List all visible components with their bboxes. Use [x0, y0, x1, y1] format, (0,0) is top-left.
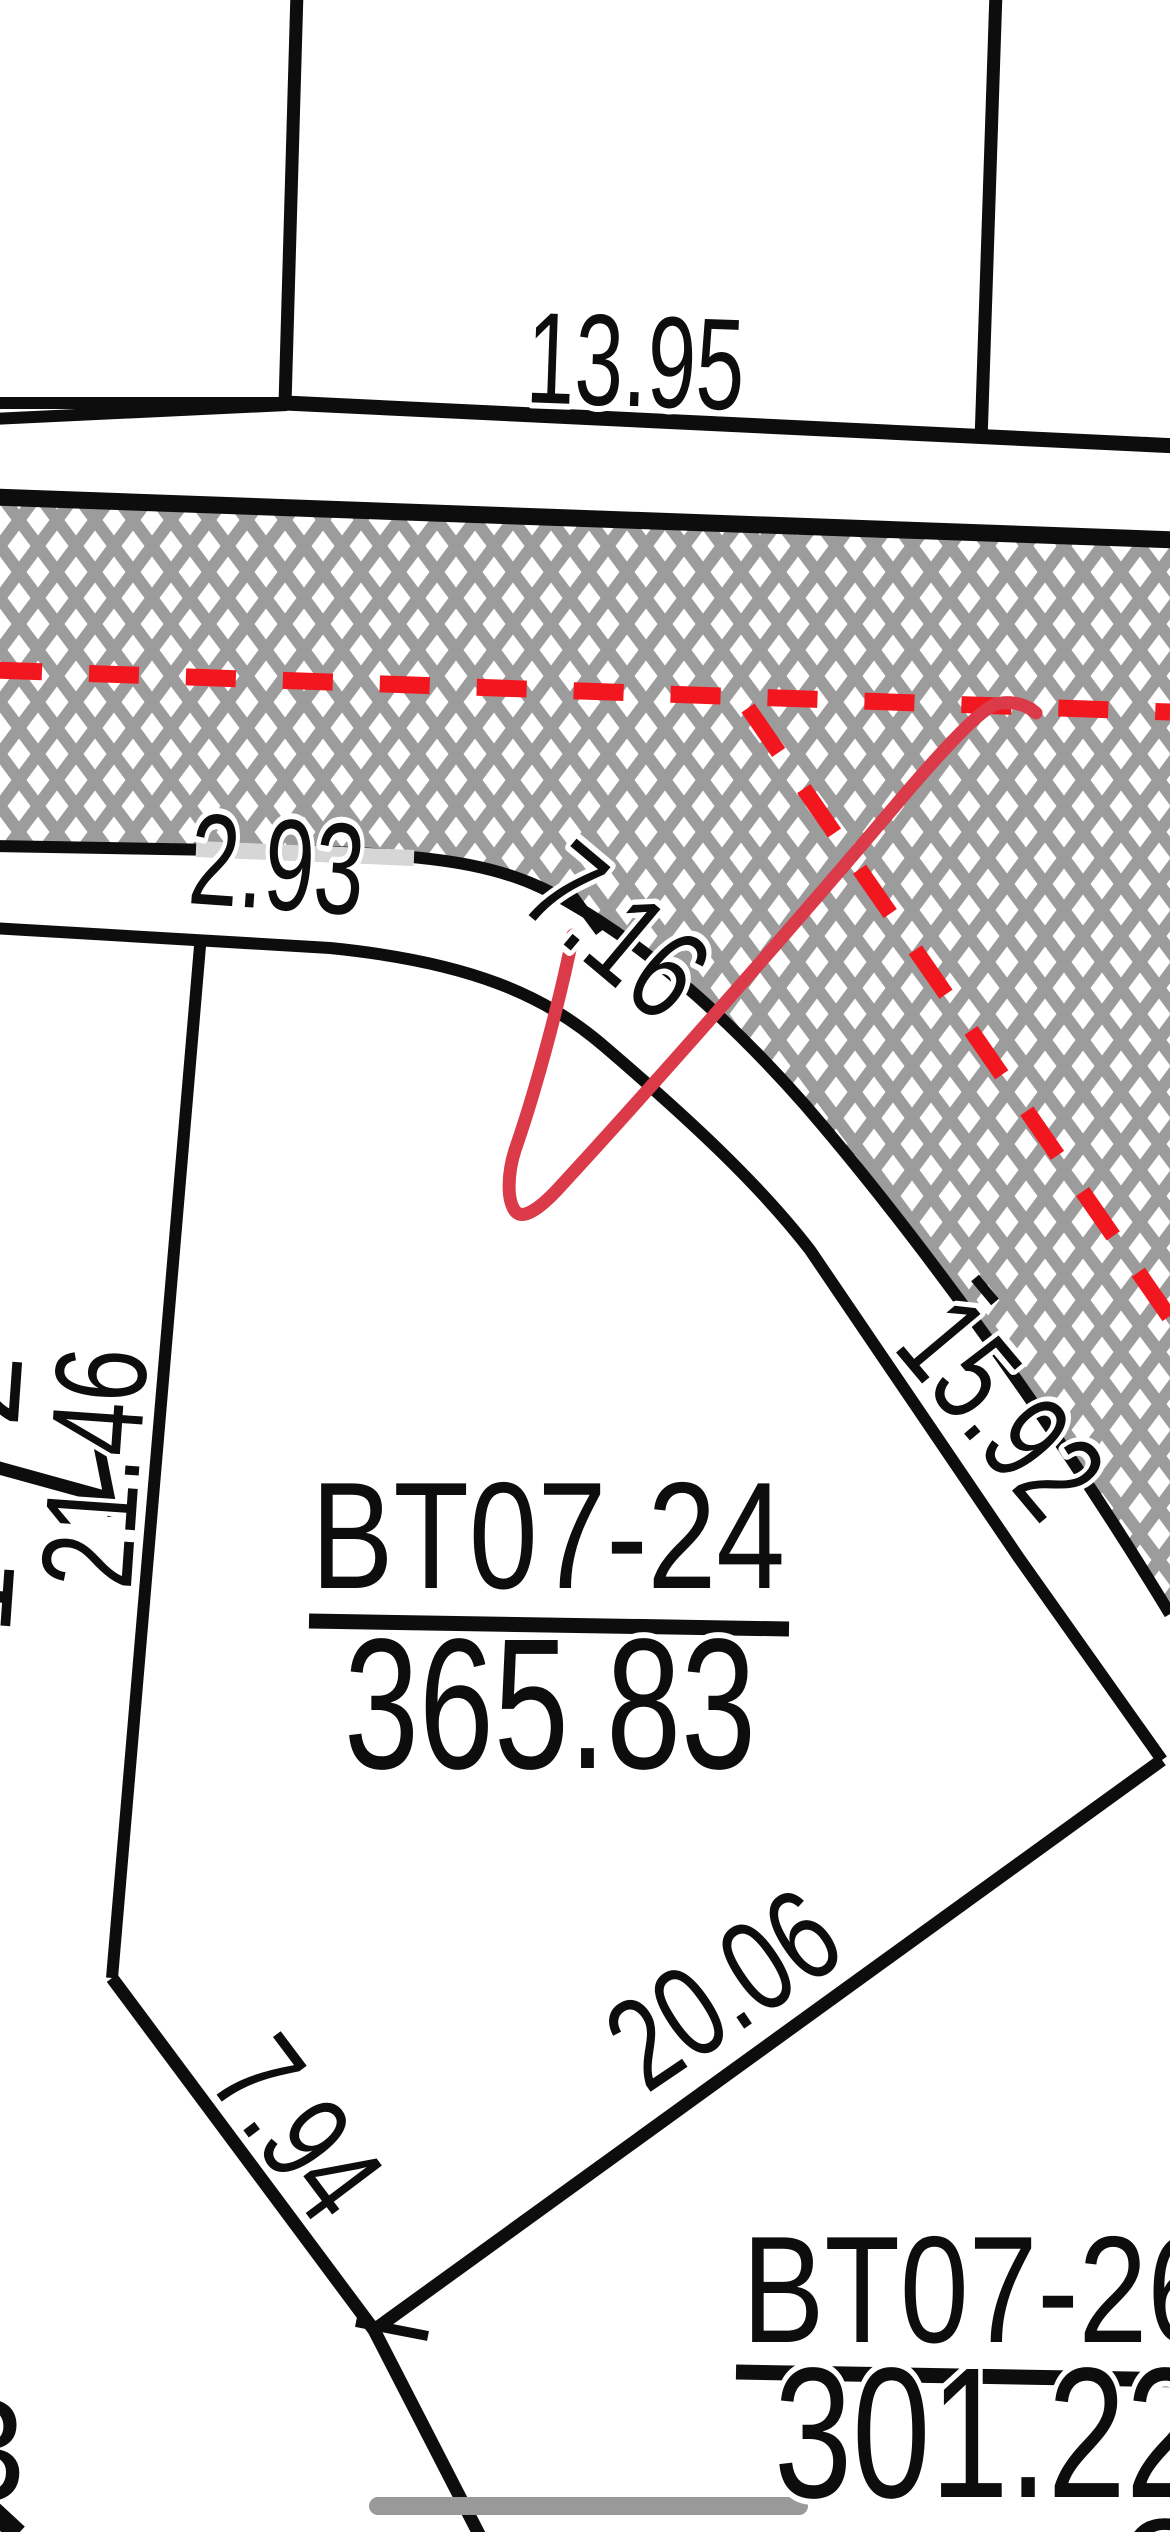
parcel-id-bt07-24: BT07-24: [311, 1451, 785, 1621]
edge-fragment-left-lower: 1: [0, 1556, 42, 1638]
dimension-label-road-1: 2.93: [185, 785, 370, 943]
parcel-label-bt07-26: BT07-26 301.22: [736, 2205, 1170, 2532]
parcel-area-bt07-24: 365.83: [344, 1601, 756, 1808]
edge-fragment-left-upper: 2: [0, 1348, 50, 1430]
dimension-label-top-lot: 13.95: [524, 284, 747, 438]
edge-fragment-bottom-left: 3: [0, 2369, 26, 2531]
map-canvas[interactable]: 13.95 2.93 7.16 15.92 21.46 7.94 20.06 B…: [0, 0, 1170, 2532]
parcel-area-bt07-26: 301.22: [774, 2330, 1170, 2532]
edge-fragment-bottom-right: 2: [1120, 2485, 1170, 2532]
parcel-label-bt07-24: BT07-24 365.83: [309, 1451, 789, 1808]
cadastral-map-view: 13.95 2.93 7.16 15.92 21.46 7.94 20.06 B…: [0, 0, 1170, 2532]
